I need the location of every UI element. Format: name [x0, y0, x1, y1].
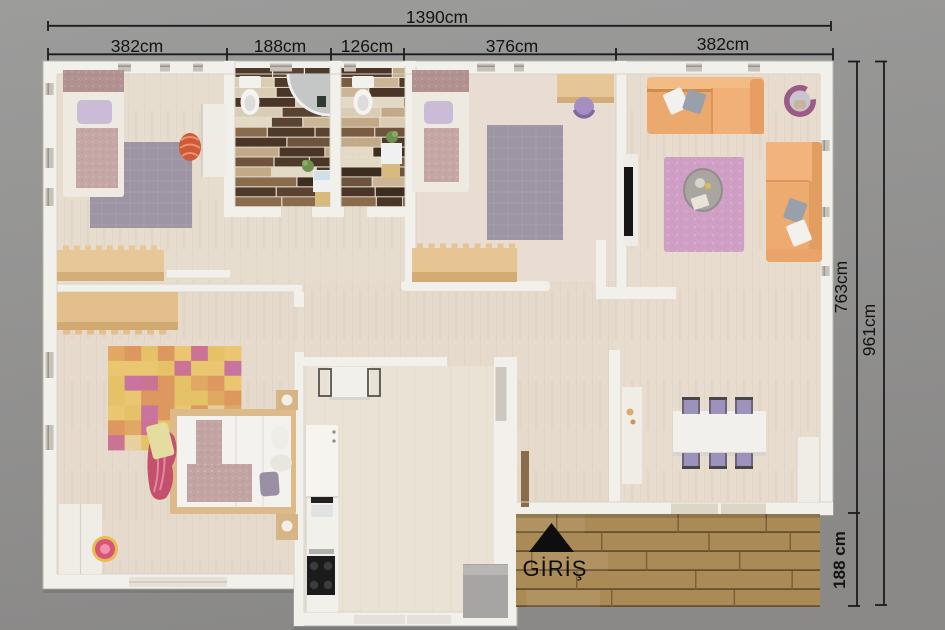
svg-text:1390cm: 1390cm	[406, 7, 468, 27]
svg-text:188 cm: 188 cm	[830, 531, 849, 589]
svg-text:376cm: 376cm	[486, 36, 539, 56]
svg-text:188cm: 188cm	[254, 36, 307, 56]
svg-text:126cm: 126cm	[341, 36, 394, 56]
svg-text:GİRİŞ: GİRİŞ	[523, 556, 588, 581]
svg-text:961cm: 961cm	[859, 304, 879, 357]
svg-text:382cm: 382cm	[111, 36, 164, 56]
svg-text:382cm: 382cm	[697, 34, 750, 54]
svg-text:763cm: 763cm	[831, 261, 851, 314]
